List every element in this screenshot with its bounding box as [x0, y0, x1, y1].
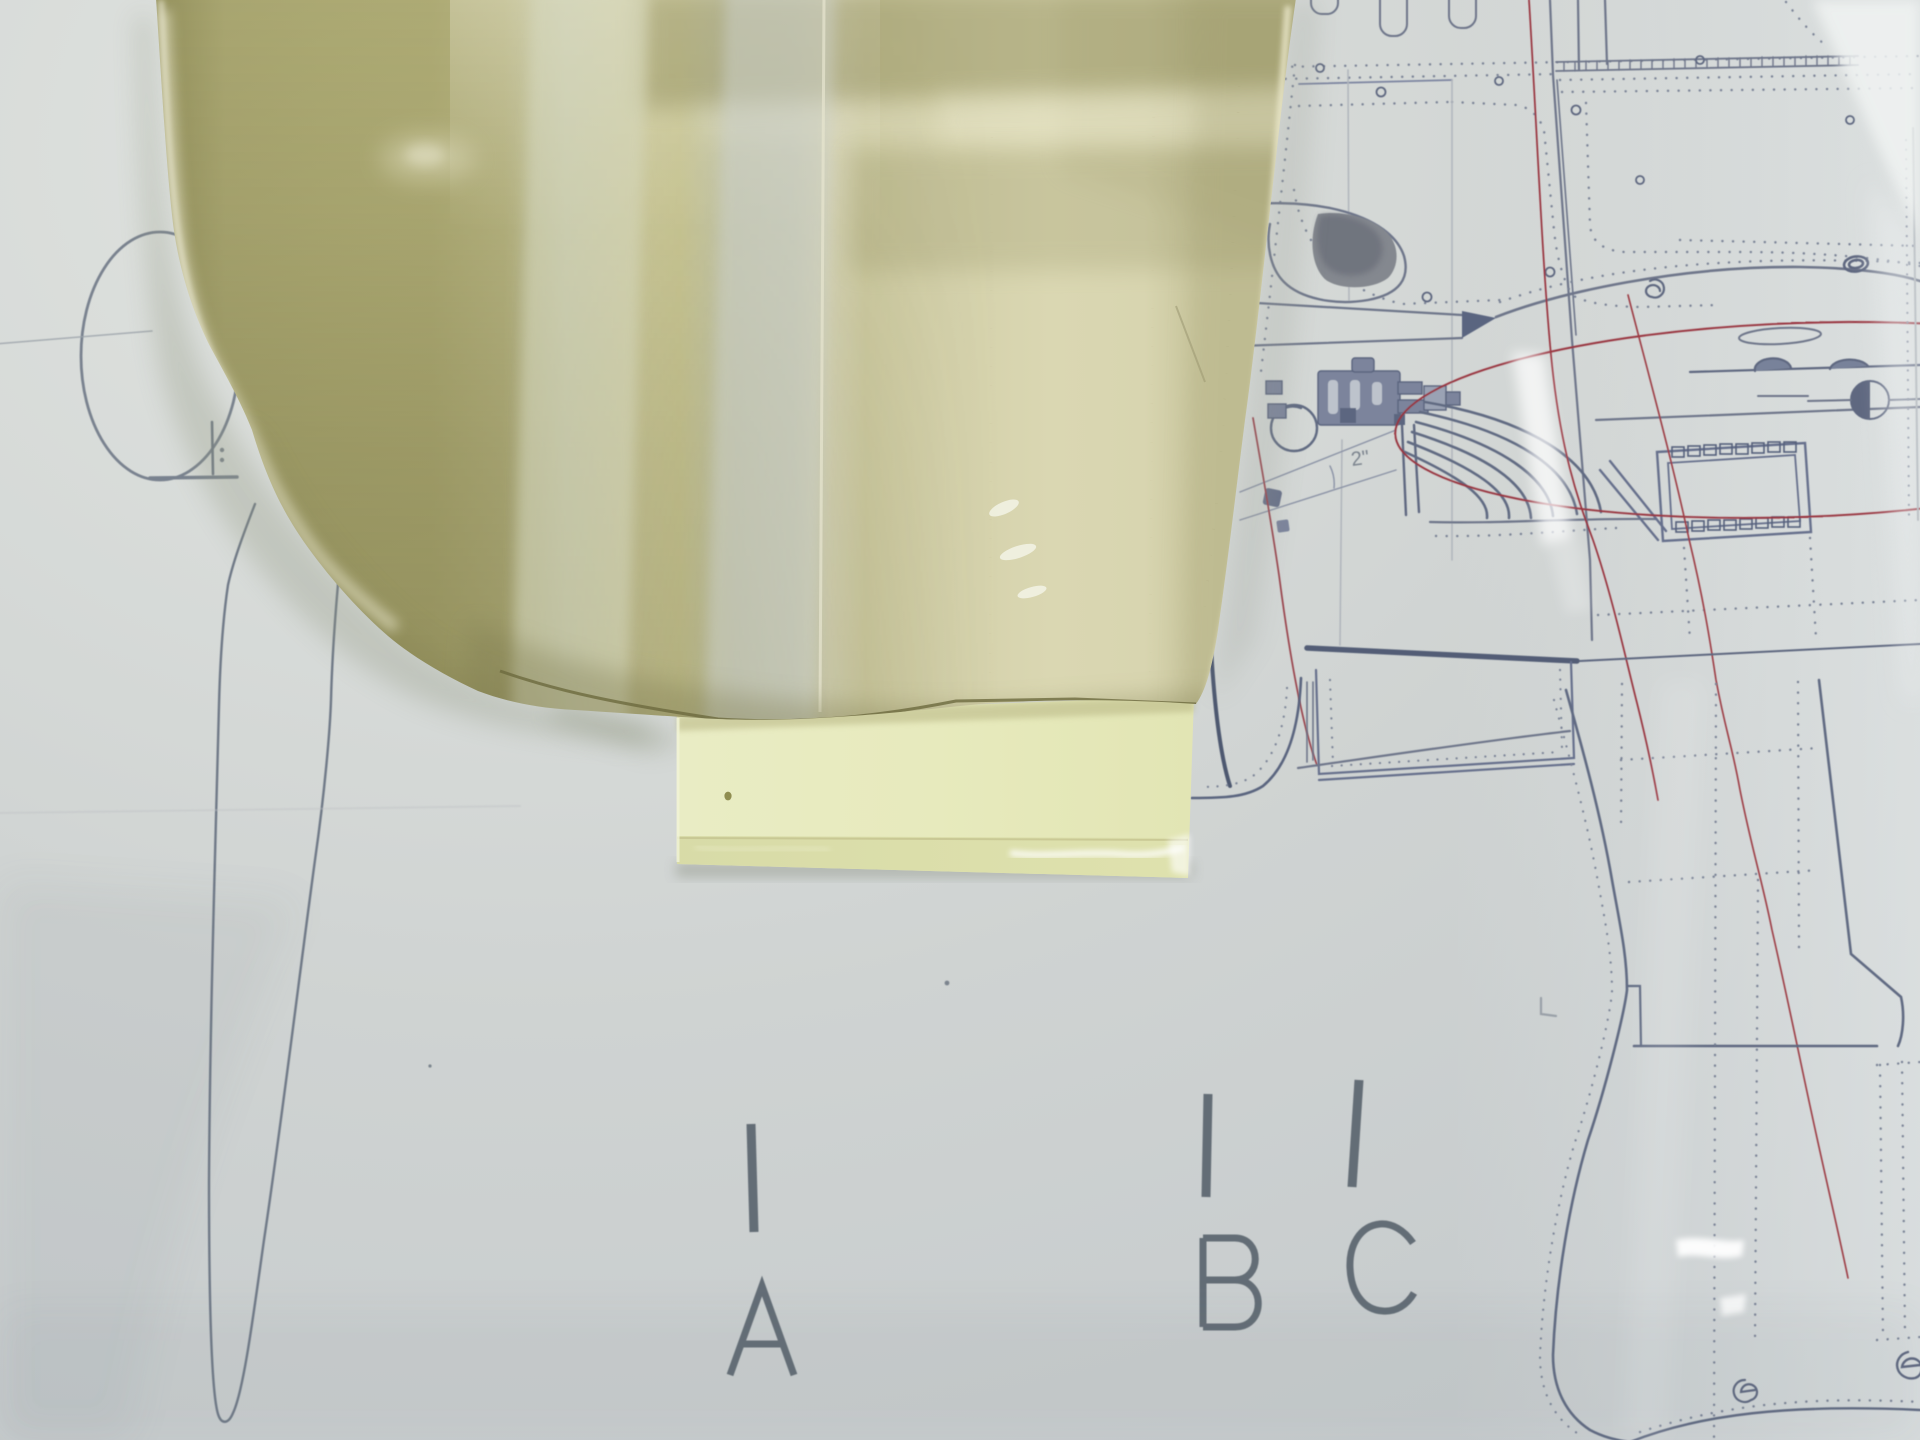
- svg-text:2": 2": [1350, 447, 1371, 471]
